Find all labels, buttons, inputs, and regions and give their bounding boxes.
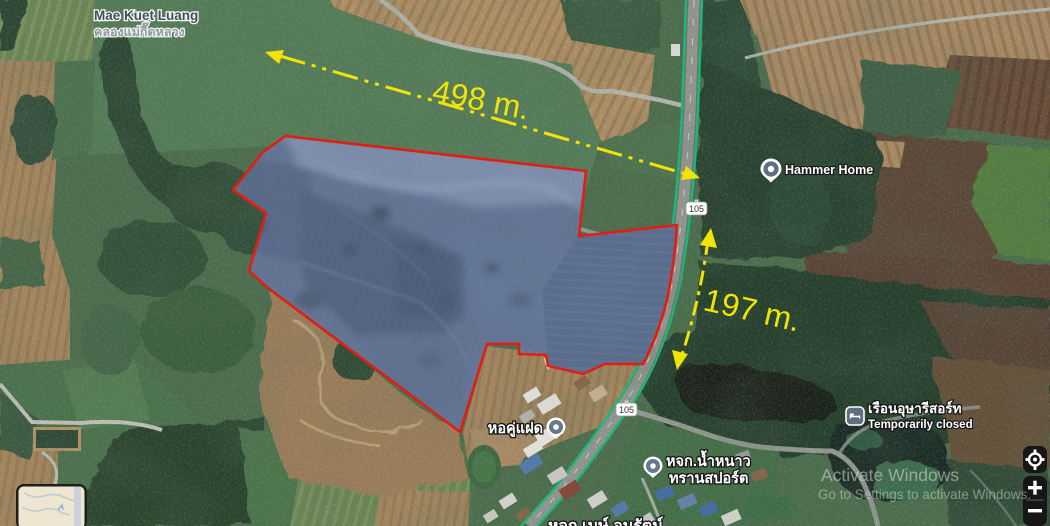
svg-text:Go to Settings to activate Win: Go to Settings to activate Windows. — [818, 487, 1031, 502]
svg-text:Hammer Home: Hammer Home — [785, 163, 873, 177]
svg-text:Mae Kuet Luang: Mae Kuet Luang — [94, 8, 198, 23]
svg-text:หจก.เมษ์ อมรัตน์: หจก.เมษ์ อมรัตน์ — [548, 516, 663, 526]
svg-text:เรือนอุษารีสอร์ท: เรือนอุษารีสอร์ท — [868, 400, 962, 417]
svg-text:คลองแม่กื๊ดหลวง: คลองแม่กื๊ดหลวง — [94, 22, 185, 39]
svg-text:หอคู่แฝด: หอคู่แฝด — [488, 421, 543, 437]
svg-text:105: 105 — [689, 204, 704, 214]
svg-text:Temporarily closed: Temporarily closed — [868, 419, 973, 431]
svg-text:Activate Windows: Activate Windows — [821, 465, 959, 485]
svg-text:105: 105 — [619, 405, 634, 415]
svg-text:ทรานสปอร์ต: ทรานสปอร์ต — [669, 469, 748, 487]
